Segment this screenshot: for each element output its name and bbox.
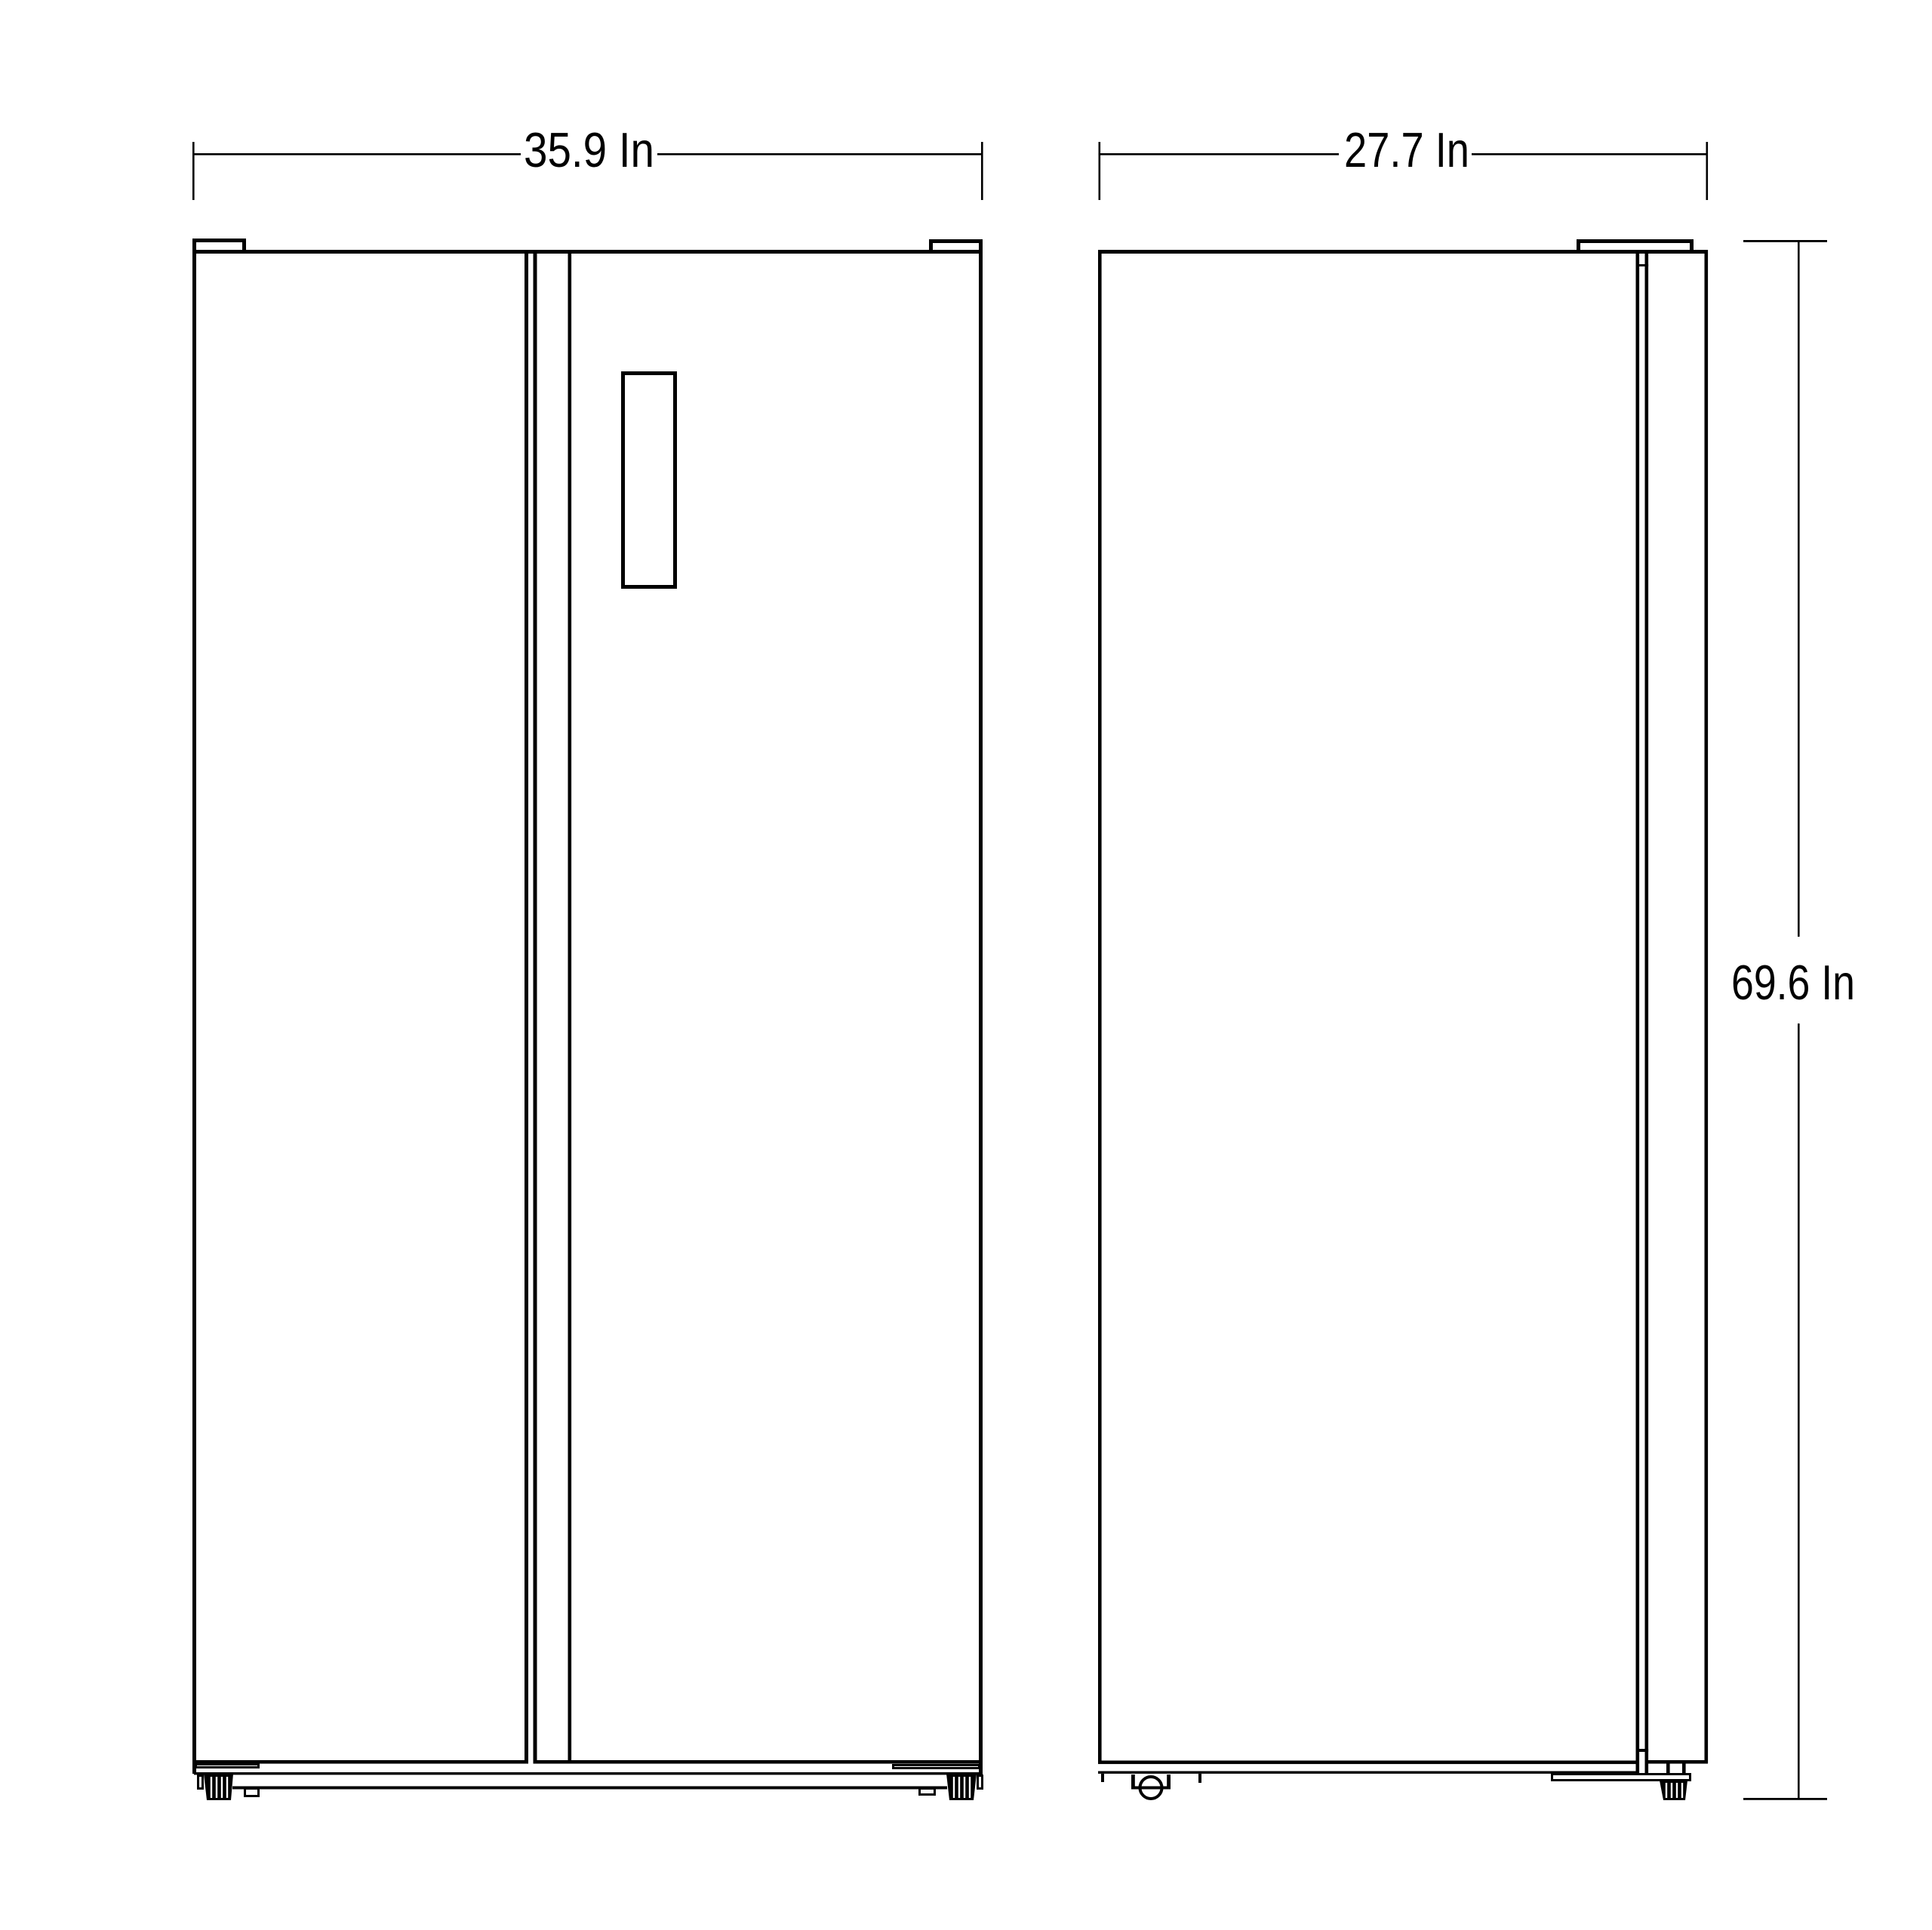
svg-text:27.7 In: 27.7 In — [1344, 122, 1469, 177]
svg-text:69.6 In: 69.6 In — [1731, 955, 1855, 1010]
svg-text:35.9 In: 35.9 In — [524, 122, 654, 177]
